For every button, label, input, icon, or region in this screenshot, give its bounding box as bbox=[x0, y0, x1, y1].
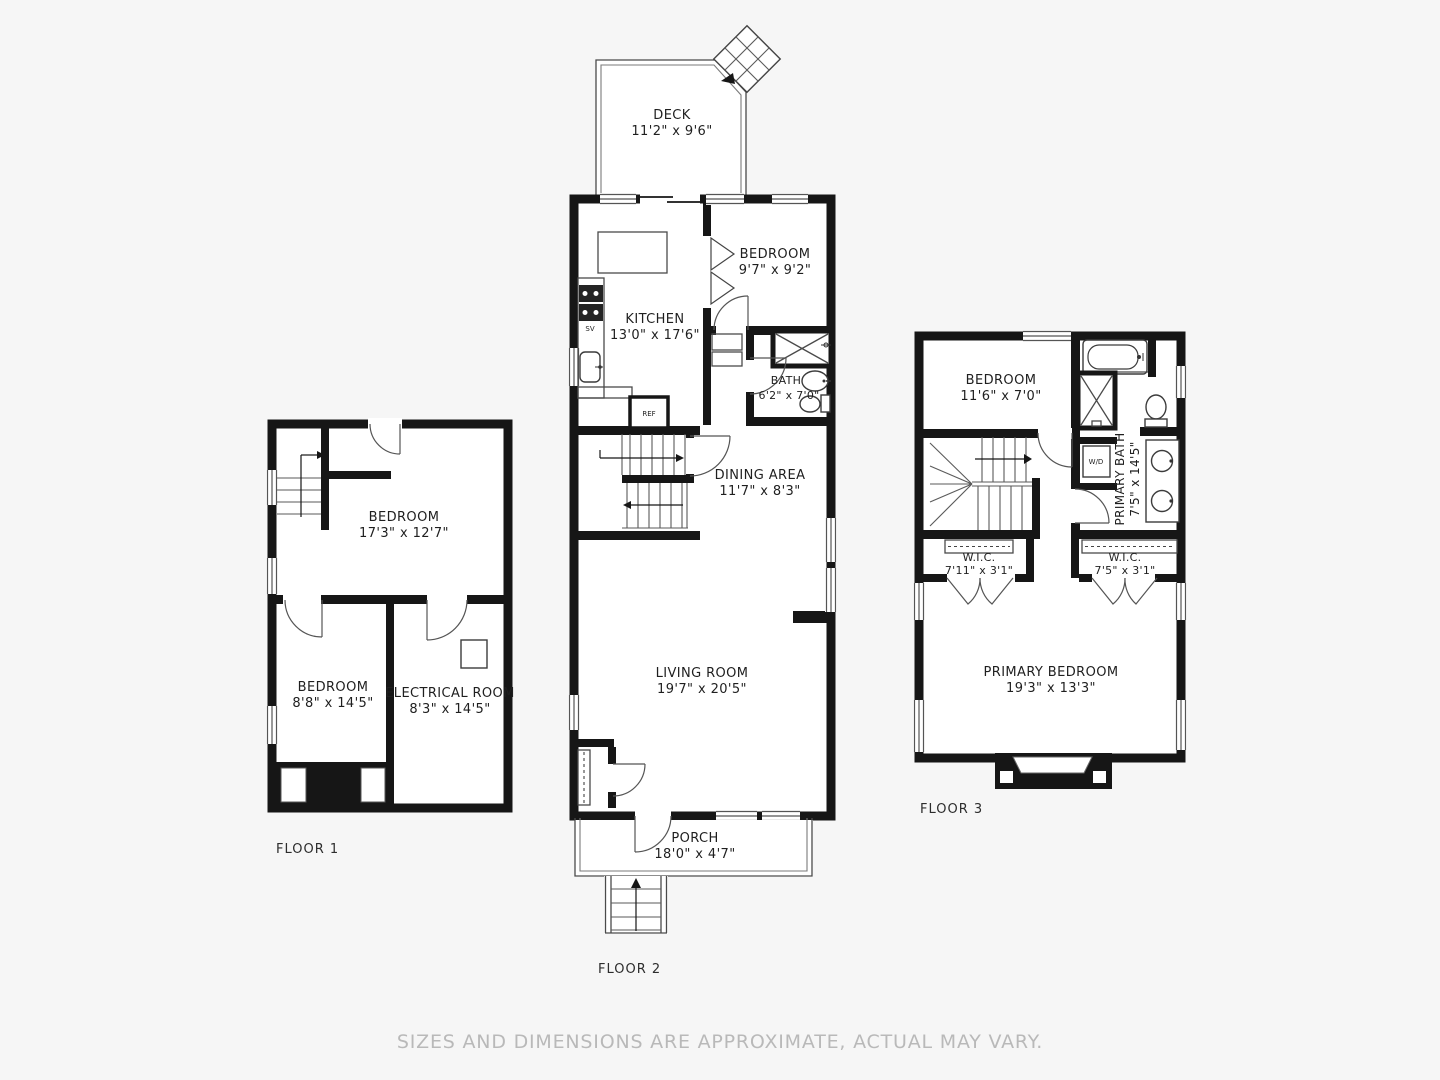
double-vanity-icon bbox=[1146, 440, 1179, 522]
floor2-dining-dims: 11'7" x 8'3" bbox=[719, 484, 800, 499]
porch-label: PORCH bbox=[671, 831, 718, 846]
window bbox=[913, 583, 925, 620]
floor3-title: FLOOR 3 bbox=[920, 802, 983, 817]
window bbox=[600, 193, 636, 205]
floor2-living-label: LIVING ROOM bbox=[656, 666, 749, 681]
floor1-bedroom-small-dims: 8'8" x 14'5" bbox=[292, 696, 373, 711]
floor2-bedroom-dims: 9'7" x 9'2" bbox=[739, 263, 812, 278]
window bbox=[568, 695, 580, 730]
floor3-primary-bath-dims: 7'5" x 14'5" bbox=[1128, 441, 1142, 516]
floor2-kitchen-dims: 13'0" x 17'6" bbox=[610, 328, 700, 343]
floor3-primary-bedroom-label: PRIMARY BEDROOM bbox=[984, 665, 1119, 680]
window bbox=[825, 568, 837, 612]
window bbox=[825, 518, 837, 562]
floor2-bath-label: BATH bbox=[771, 374, 801, 387]
floor1-title: FLOOR 1 bbox=[276, 842, 339, 857]
floor1-electrical-dims: 8'3" x 14'5" bbox=[409, 702, 490, 717]
sliding-door-icon bbox=[640, 194, 700, 205]
toilet-icon bbox=[1145, 395, 1167, 427]
floor1-closet-niche bbox=[361, 768, 385, 802]
shower-icon bbox=[773, 331, 831, 366]
sv-label: SV bbox=[585, 325, 594, 333]
floor3-wic-left-label: W.I.C. bbox=[963, 551, 996, 564]
floor2-deck: DECK 11'2" x 9'6" bbox=[596, 26, 780, 200]
porch-dims: 18'0" x 4'7" bbox=[654, 847, 735, 862]
disclaimer-text: SIZES AND DIMENSIONS ARE APPROXIMATE, AC… bbox=[0, 1031, 1440, 1053]
floor2-plan: DECK 11'2" x 9'6" bbox=[568, 26, 837, 977]
floor-plan-canvas: BEDROOM 17'3" x 12'7" BEDROOM 8'8" x 14'… bbox=[0, 0, 1440, 1080]
bathtub-icon bbox=[1083, 340, 1147, 374]
window bbox=[266, 706, 278, 744]
floor1-bedroom-large-label: BEDROOM bbox=[369, 510, 440, 525]
floor3-wic-right-dims: 7'5" x 3'1" bbox=[1095, 564, 1156, 577]
deck-dims: 11'2" x 9'6" bbox=[631, 124, 712, 139]
kitchen-sink-icon bbox=[580, 352, 603, 382]
floor2-title: FLOOR 2 bbox=[598, 962, 661, 977]
floor2-dining-label: DINING AREA bbox=[715, 468, 806, 483]
window bbox=[913, 700, 925, 752]
floor1-plan: BEDROOM 17'3" x 12'7" BEDROOM 8'8" x 14'… bbox=[266, 418, 515, 857]
floor3-bedroom-label: BEDROOM bbox=[966, 373, 1037, 388]
deck-label: DECK bbox=[653, 108, 691, 123]
window bbox=[1175, 700, 1187, 750]
window bbox=[772, 193, 808, 205]
window bbox=[1175, 583, 1187, 620]
floor1-closet-niche bbox=[281, 768, 306, 802]
floor3-primary-bedroom-dims: 19'3" x 13'3" bbox=[1006, 681, 1096, 696]
floor2-bath-dims: 6'2" x 7'0" bbox=[759, 389, 820, 402]
shower-icon bbox=[1078, 373, 1115, 428]
floor2-porch: PORCH 18'0" x 4'7" bbox=[575, 810, 813, 877]
floor1-bedroom-large-dims: 17'3" x 12'7" bbox=[359, 526, 449, 541]
floor1-bedroom-small-label: BEDROOM bbox=[298, 680, 369, 695]
floor1-electrical-label: ELECTRICAL ROOM bbox=[385, 686, 515, 701]
floor2-bedroom-label: BEDROOM bbox=[740, 247, 811, 262]
floor3-wic-left-dims: 7'11" x 3'1" bbox=[945, 564, 1013, 577]
ref-label: REF bbox=[642, 410, 655, 418]
porch-steps-icon bbox=[604, 876, 668, 934]
floor2-kitchen-label: KITCHEN bbox=[625, 312, 684, 327]
window bbox=[266, 558, 278, 594]
bay-window-icon bbox=[995, 753, 1112, 789]
floor3-primary-bath-label: PRIMARY BATH bbox=[1113, 432, 1127, 525]
window bbox=[1023, 330, 1071, 342]
floor3-wic-right-label: W.I.C. bbox=[1109, 551, 1142, 564]
electrical-panel-icon bbox=[461, 640, 487, 668]
window bbox=[266, 470, 278, 505]
floor3-bedroom-dims: 11'6" x 7'0" bbox=[960, 389, 1041, 404]
wd-label: W/D bbox=[1089, 458, 1104, 466]
floor3-plan: W/D BEDROOM 11'6" x 7'0" PRIMARY BATH 7'… bbox=[913, 330, 1187, 817]
window bbox=[1175, 366, 1187, 398]
floor2-living-dims: 19'7" x 20'5" bbox=[657, 682, 747, 697]
window bbox=[706, 193, 744, 205]
